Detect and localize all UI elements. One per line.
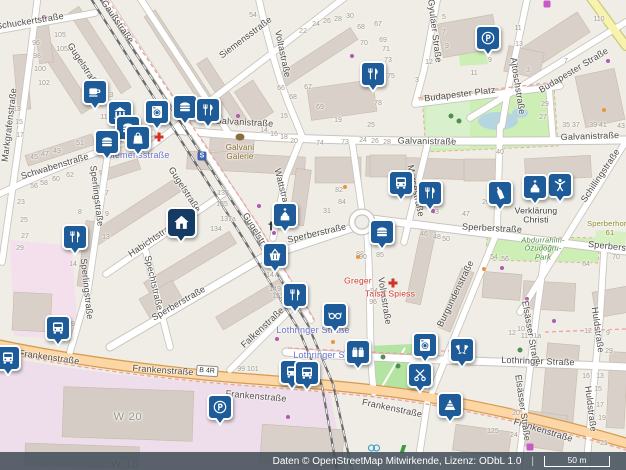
shop-dot	[525, 297, 529, 301]
restaurant-icon	[287, 287, 303, 303]
church-icon	[277, 207, 293, 223]
tree-icon	[449, 114, 454, 119]
amenity-dot	[482, 267, 486, 271]
laundry-marker[interactable]	[144, 99, 170, 125]
restaurant-marker[interactable]	[195, 97, 221, 123]
cafe-marker[interactable]	[82, 79, 108, 105]
cake-marker[interactable]	[437, 392, 463, 418]
shop-dot	[350, 54, 354, 58]
s-badge-icon: S	[198, 152, 207, 161]
bus-icon	[299, 365, 315, 381]
kiosk-icon	[130, 130, 146, 146]
restaurant-icon	[200, 102, 216, 118]
home-marker[interactable]	[166, 207, 197, 238]
parking-icon	[480, 30, 496, 46]
shop-dot	[257, 204, 261, 208]
scale-label: 50 m	[568, 455, 587, 465]
map-footer-bar: Daten © OpenStreetMap Mitwirkende, Lizen…	[0, 452, 626, 470]
restaurant-marker[interactable]	[62, 224, 88, 250]
bar-icon	[454, 342, 470, 358]
parking-icon	[212, 399, 228, 415]
shop-dot	[552, 319, 556, 323]
tree-icon	[381, 355, 386, 360]
shop-dot	[286, 415, 290, 419]
glasses-icon	[327, 307, 343, 323]
glasses-marker[interactable]	[322, 302, 348, 328]
restaurant-marker[interactable]	[417, 180, 443, 206]
kiosk-marker[interactable]	[125, 125, 151, 151]
locker-icon	[527, 444, 534, 451]
scissors-icon	[412, 367, 428, 383]
bike-icon	[368, 445, 380, 452]
tree-icon	[518, 348, 523, 353]
parking-marker[interactable]	[207, 394, 233, 420]
bar-marker[interactable]	[449, 337, 475, 363]
locker-icon	[544, 1, 551, 8]
burger-marker[interactable]	[94, 129, 120, 155]
cafe-icon	[87, 84, 103, 100]
restaurant-marker[interactable]	[360, 61, 386, 87]
bus-icon	[0, 350, 16, 366]
basket-marker[interactable]	[262, 242, 288, 268]
home-icon	[172, 213, 191, 232]
shop-dot	[275, 337, 279, 341]
bus-marker[interactable]	[0, 345, 21, 371]
shop-dot	[606, 59, 610, 63]
parking-marker[interactable]	[475, 25, 501, 51]
church-marker[interactable]	[272, 202, 298, 228]
burger-icon	[177, 99, 193, 115]
shop-dot	[272, 231, 276, 235]
scale-bar: 50 m	[544, 456, 610, 467]
burger-icon	[99, 134, 115, 150]
road-ref-badge: B 4R	[196, 365, 218, 377]
bus-marker[interactable]	[294, 360, 320, 386]
burger-marker[interactable]	[369, 219, 395, 245]
restaurant-icon	[365, 66, 381, 82]
wine-marker[interactable]	[487, 180, 513, 206]
restaurant-marker[interactable]	[282, 282, 308, 308]
amenity-dot	[602, 108, 606, 112]
attribution-text: Daten © OpenStreetMap Mitwirkende, Lizen…	[273, 456, 522, 467]
map-base	[0, 0, 626, 470]
bus-marker[interactable]	[45, 315, 71, 341]
restaurant-icon	[422, 185, 438, 201]
cake-icon	[442, 397, 458, 413]
palette-icon	[236, 134, 245, 141]
laundry-icon	[417, 337, 433, 353]
bus-icon	[393, 175, 409, 191]
amenity-dot	[343, 185, 347, 189]
laundry-icon	[149, 104, 165, 120]
amenity-dot	[331, 340, 335, 344]
luggage-icon	[350, 344, 366, 360]
laundry-marker[interactable]	[412, 332, 438, 358]
fitness-marker[interactable]	[547, 172, 573, 198]
church-icon	[527, 179, 543, 195]
wine-icon	[492, 185, 508, 201]
bus-marker[interactable]	[388, 170, 414, 196]
shop-dot	[500, 266, 504, 270]
footer-separator: |	[531, 456, 534, 467]
shop-dot	[236, 114, 240, 118]
burger-icon	[374, 224, 390, 240]
restaurant-icon	[67, 229, 83, 245]
tree-icon	[457, 119, 462, 124]
tree-icon	[396, 364, 401, 369]
shop-dot	[42, 15, 46, 19]
pharmacy-cross-icon	[389, 279, 398, 288]
amenity-dot	[356, 255, 360, 259]
scissors-marker[interactable]	[407, 362, 433, 388]
fitness-icon	[552, 177, 568, 193]
basket-icon	[267, 247, 283, 263]
church-marker[interactable]	[522, 174, 548, 200]
bus-icon	[50, 320, 66, 336]
map-canvas[interactable]: Daten © OpenStreetMap Mitwirkende, Lizen…	[0, 0, 626, 470]
luggage-marker[interactable]	[345, 339, 371, 365]
